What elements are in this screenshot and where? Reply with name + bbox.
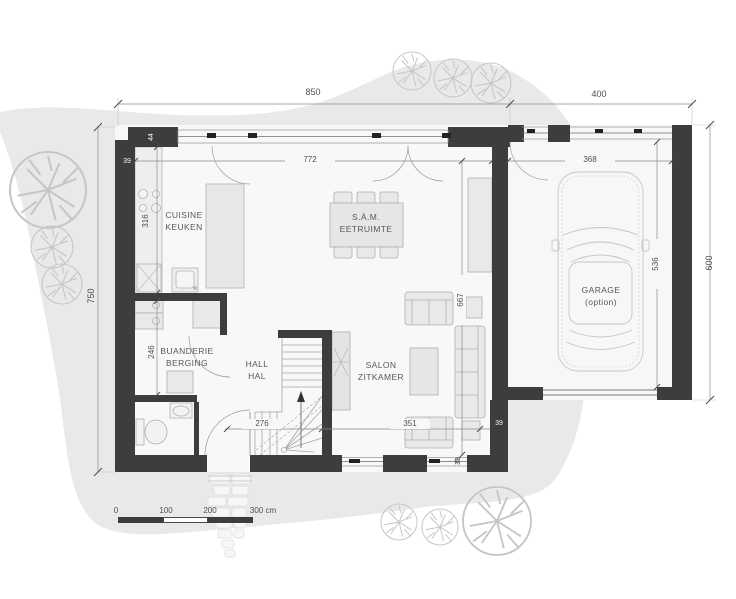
- dim-left: 750: [86, 271, 96, 321]
- dim-garage-depth: 536: [651, 239, 661, 289]
- floor-plan: 850 400 750 600 772 368 316 44 39 246 27…: [0, 0, 736, 599]
- dining-chair: [334, 247, 352, 258]
- side-table: [466, 297, 482, 318]
- dining-chair: [380, 247, 398, 258]
- tall-cabinet: [468, 178, 492, 272]
- dim-garage-window: 368: [565, 155, 615, 165]
- storage-cabinet: [193, 299, 222, 328]
- washbasin: [170, 403, 192, 418]
- scale-bar-segment: [118, 517, 163, 523]
- scale-label-100: 100: [151, 506, 181, 516]
- scale-bar-segment: [208, 517, 253, 523]
- dim-living-depth: 667: [456, 275, 466, 325]
- room-label-dining: S.À.M.EETRUIMTE: [326, 212, 406, 235]
- kitchen-island: [206, 184, 244, 288]
- garage-floor: [508, 125, 692, 400]
- dim-top-main: 850: [263, 87, 363, 97]
- dim-right: 600: [704, 238, 714, 288]
- dining-chair: [334, 192, 352, 203]
- side-table: [462, 421, 480, 440]
- dining-chair: [357, 192, 375, 203]
- dim-wall-bottom: 39: [454, 436, 464, 486]
- dim-top-garage: 400: [549, 89, 649, 99]
- dining-chair: [357, 247, 375, 258]
- storage-cabinet: [167, 371, 193, 393]
- dining-chair: [380, 192, 398, 203]
- scale-label-200: 200: [195, 506, 225, 516]
- tree-icon: [422, 509, 458, 545]
- room-label-living: SALONZITKAMER: [341, 360, 421, 383]
- room-label-hall: HALLHAL: [217, 359, 297, 382]
- dim-corner: 44: [147, 112, 157, 162]
- scale-bar-segment: [163, 517, 208, 523]
- dim-wall-left: 39: [112, 157, 142, 167]
- toilet: [136, 419, 167, 445]
- dim-wall-right: 39: [484, 419, 514, 429]
- room-label-kitchen: CUISINEKEUKEN: [144, 210, 224, 233]
- dim-salon: 351: [390, 419, 430, 429]
- room-label-garage: GARAGE(option): [561, 285, 641, 308]
- dim-living-window: 772: [285, 155, 335, 165]
- dim-hall: 276: [242, 419, 282, 429]
- scale-label-300: 300 cm: [242, 506, 284, 516]
- scale-label-0: 0: [111, 506, 121, 516]
